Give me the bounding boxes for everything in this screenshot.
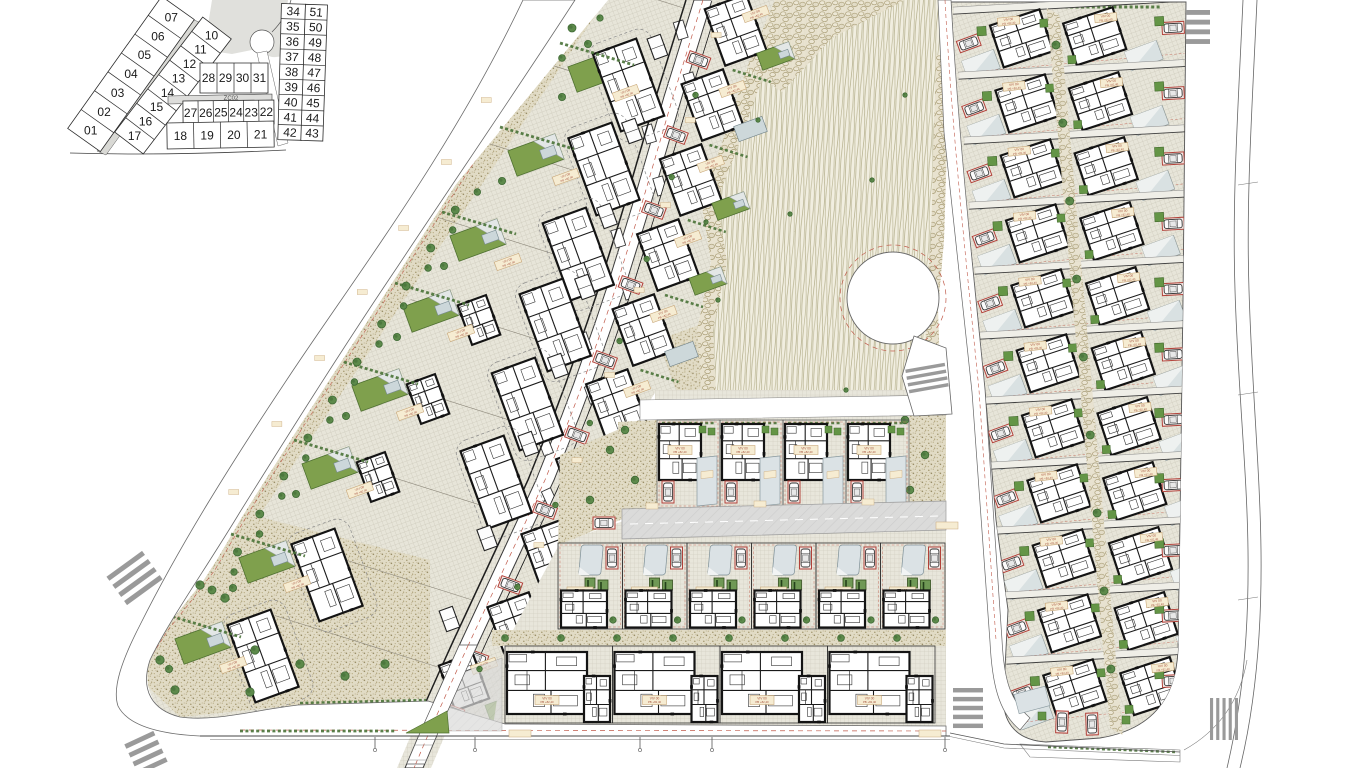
svg-text:01: 01 <box>84 124 98 138</box>
svg-text:35: 35 <box>286 19 301 34</box>
svg-text:42: 42 <box>283 125 298 140</box>
svg-text:22: 22 <box>260 105 274 119</box>
svg-text:44: 44 <box>305 111 320 126</box>
svg-text:PB +82,40: PB +82,40 <box>863 700 877 704</box>
svg-text:23: 23 <box>245 105 259 119</box>
svg-text:24: 24 <box>229 106 243 120</box>
svg-text:47: 47 <box>307 65 322 80</box>
svg-text:06: 06 <box>151 29 165 43</box>
svg-text:19: 19 <box>200 128 214 142</box>
svg-text:40: 40 <box>284 95 299 110</box>
svg-text:46: 46 <box>306 80 321 95</box>
svg-text:PB +82,40: PB +82,40 <box>799 450 813 454</box>
svg-text:PB +82,40: PB +82,40 <box>736 450 750 454</box>
svg-text:13: 13 <box>172 71 186 85</box>
svg-text:05: 05 <box>138 48 152 62</box>
svg-text:PB +82,40: PB +82,40 <box>540 700 554 704</box>
svg-text:48: 48 <box>307 50 322 65</box>
svg-text:PB +82,40: PB +82,40 <box>755 700 769 704</box>
svg-text:18: 18 <box>174 129 188 143</box>
svg-text:PB +82,40: PB +82,40 <box>673 450 687 454</box>
svg-text:38: 38 <box>284 65 299 80</box>
svg-text:34: 34 <box>286 4 301 19</box>
svg-text:49: 49 <box>308 35 323 50</box>
svg-text:43: 43 <box>305 126 320 141</box>
svg-text:21: 21 <box>254 127 268 141</box>
svg-text:41: 41 <box>283 110 298 125</box>
svg-text:26: 26 <box>199 106 213 120</box>
svg-text:29: 29 <box>219 71 233 85</box>
svg-text:11: 11 <box>194 43 207 57</box>
svg-text:28: 28 <box>202 71 216 85</box>
svg-text:37: 37 <box>285 49 300 64</box>
svg-text:39: 39 <box>284 80 299 95</box>
svg-text:PB +82,40: PB +82,40 <box>862 450 876 454</box>
svg-text:25: 25 <box>214 106 228 120</box>
svg-text:30: 30 <box>236 71 250 85</box>
svg-text:02: 02 <box>97 105 111 119</box>
svg-text:45: 45 <box>306 96 321 111</box>
svg-text:27: 27 <box>184 106 198 120</box>
svg-text:16: 16 <box>139 115 153 129</box>
svg-text:12: 12 <box>183 57 197 71</box>
svg-text:10: 10 <box>205 28 219 42</box>
svg-text:04: 04 <box>124 67 138 81</box>
svg-text:31: 31 <box>253 71 267 85</box>
svg-text:36: 36 <box>285 34 300 49</box>
svg-text:50: 50 <box>308 20 323 35</box>
svg-text:03: 03 <box>111 86 125 100</box>
svg-text:17: 17 <box>128 129 142 143</box>
svg-text:51: 51 <box>309 5 324 20</box>
svg-text:20: 20 <box>227 128 241 142</box>
svg-text:07: 07 <box>165 11 179 25</box>
svg-text:15: 15 <box>150 100 164 114</box>
svg-text:PB +82,40: PB +82,40 <box>648 700 662 704</box>
